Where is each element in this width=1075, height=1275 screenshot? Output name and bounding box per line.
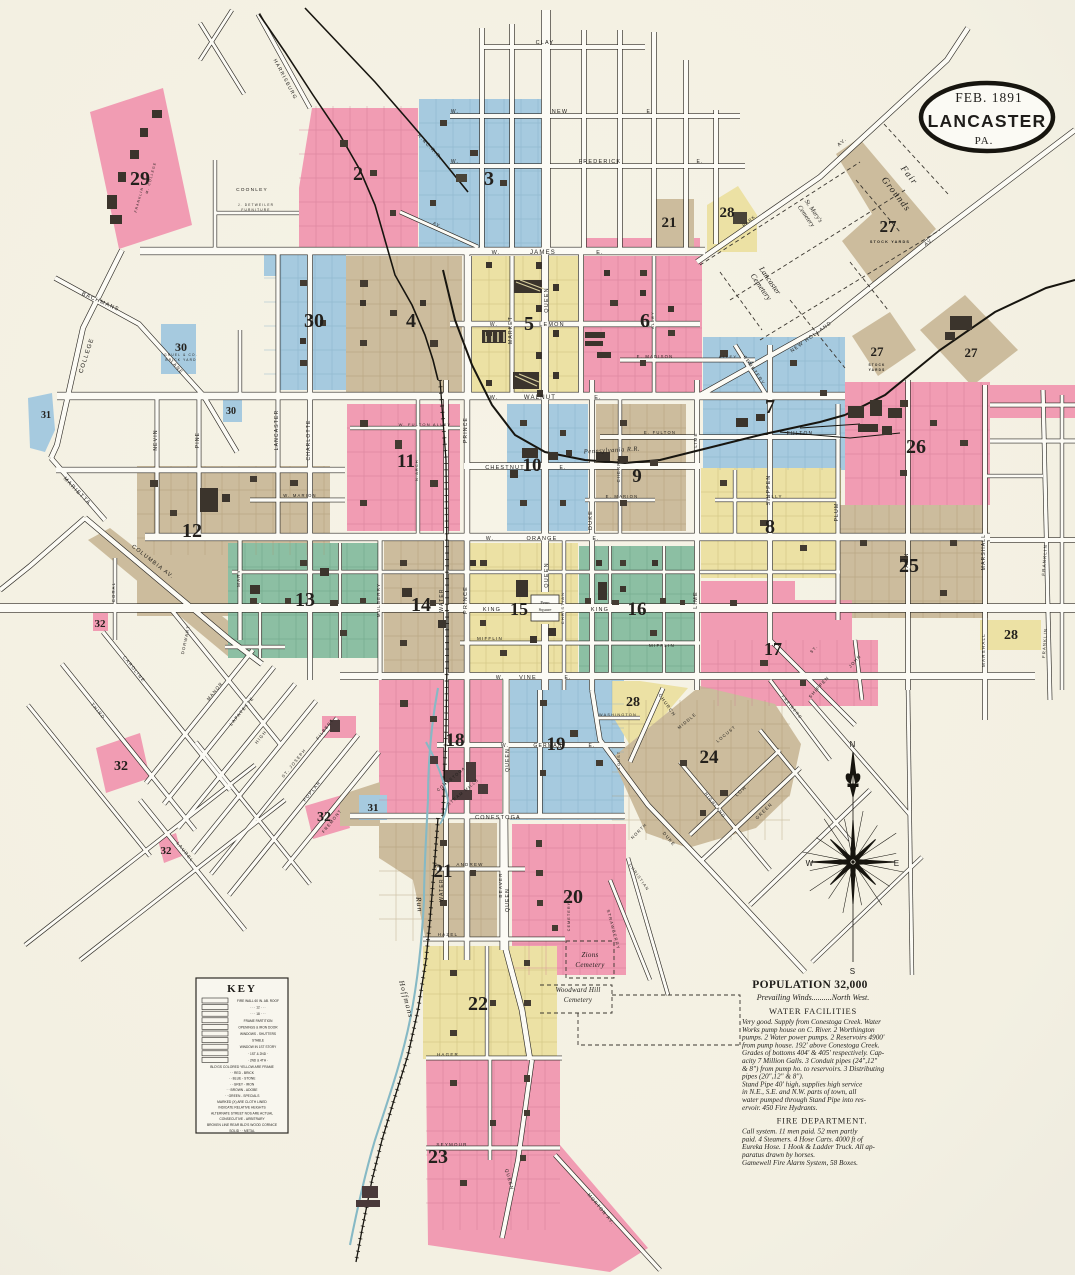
svg-text:13: 13 bbox=[295, 589, 315, 611]
svg-text:DUKE: DUKE bbox=[588, 510, 594, 530]
svg-text:KING: KING bbox=[591, 607, 609, 613]
svg-text:30: 30 bbox=[226, 406, 236, 417]
svg-text:16: 16 bbox=[628, 599, 647, 620]
svg-text:2: 2 bbox=[353, 163, 363, 185]
svg-text:NEVIN: NEVIN bbox=[153, 429, 159, 450]
svg-text:· · · 18 · · ·: · · · 18 · · · bbox=[250, 1012, 265, 1016]
svg-text:8: 8 bbox=[765, 516, 775, 538]
svg-text:OPENINGS & IRON DOOR: OPENINGS & IRON DOOR bbox=[238, 1025, 278, 1029]
svg-text:LIME: LIME bbox=[693, 591, 699, 609]
svg-text:QUEEN: QUEEN bbox=[544, 562, 550, 588]
svg-text:W.: W. bbox=[451, 109, 459, 115]
svg-text:COONLEY: COONLEY bbox=[236, 187, 268, 193]
svg-text:MARSHALL: MARSHALL bbox=[981, 534, 987, 571]
svg-text:PRINCE: PRINCE bbox=[463, 586, 469, 614]
svg-text:FURNITURE: FURNITURE bbox=[241, 208, 270, 212]
svg-text:QUEEN: QUEEN bbox=[505, 888, 511, 912]
svg-text:3: 3 bbox=[484, 168, 494, 190]
svg-text:· 2ND & 4TH ·: · 2ND & 4TH · bbox=[248, 1058, 268, 1062]
svg-text:28: 28 bbox=[720, 205, 735, 221]
svg-text:32: 32 bbox=[317, 810, 331, 825]
svg-text:SOLID · · METAL: SOLID · · METAL bbox=[229, 1129, 255, 1133]
svg-text:MARKED (X) ARE CLOTH LINED: MARKED (X) ARE CLOTH LINED bbox=[217, 1100, 267, 1104]
svg-text:ORANGE: ORANGE bbox=[526, 536, 557, 542]
svg-text:WINDOW IN 1ST STORY: WINDOW IN 1ST STORY bbox=[240, 1045, 277, 1049]
svg-text:W.: W. bbox=[490, 322, 498, 328]
svg-text:E.: E. bbox=[696, 159, 703, 165]
svg-text:ANDREW: ANDREW bbox=[456, 862, 483, 867]
svg-text:31: 31 bbox=[41, 410, 51, 421]
svg-text:STABLE: STABLE bbox=[252, 1039, 264, 1043]
svg-text:30: 30 bbox=[175, 340, 187, 354]
svg-text:4: 4 bbox=[406, 310, 416, 332]
svg-text:18: 18 bbox=[446, 730, 465, 751]
svg-text:W.: W. bbox=[490, 395, 499, 401]
svg-text:ALLEY: ALLEY bbox=[651, 311, 655, 329]
svg-text:PA.: PA. bbox=[975, 135, 994, 147]
svg-text:Cemetery: Cemetery bbox=[575, 961, 605, 969]
svg-text:9: 9 bbox=[632, 466, 642, 487]
svg-text:LEMON: LEMON bbox=[539, 322, 565, 328]
svg-text:CHARLOTTE: CHARLOTTE bbox=[306, 419, 312, 460]
svg-text:BRICK YARD: BRICK YARD bbox=[165, 358, 196, 362]
svg-text:FREDERICK: FREDERICK bbox=[579, 159, 622, 165]
svg-text:VINE: VINE bbox=[519, 675, 537, 681]
svg-text:LANCASTER: LANCASTER bbox=[928, 111, 1047, 131]
svg-text:MARSHALL: MARSHALL bbox=[981, 633, 986, 667]
svg-text:E. FULTON: E. FULTON bbox=[644, 430, 676, 435]
svg-text:10: 10 bbox=[523, 455, 542, 476]
svg-text:SHIPPEN: SHIPPEN bbox=[766, 475, 772, 505]
svg-text:· · RED -: · · RED - BRICK bbox=[230, 1071, 255, 1075]
svg-text:· 1ST & 2ND ·: · 1ST & 2ND · bbox=[248, 1052, 268, 1056]
svg-text:MULBERRY: MULBERRY bbox=[376, 583, 381, 618]
svg-text:E: E bbox=[894, 859, 901, 868]
svg-text:W: W bbox=[806, 859, 815, 868]
svg-text:E.: E. bbox=[588, 743, 595, 749]
svg-text:E.: E. bbox=[592, 536, 599, 542]
svg-text:27: 27 bbox=[871, 344, 885, 359]
svg-text:Gamewell Fire Alarm System, 58: Gamewell Fire Alarm System, 58 Boxes. bbox=[742, 1159, 858, 1167]
svg-text:PLUM: PLUM bbox=[834, 503, 840, 522]
svg-text:CHESTNUT: CHESTNUT bbox=[485, 465, 525, 471]
svg-text:CHERRY: CHERRY bbox=[616, 458, 621, 483]
svg-text:E.: E. bbox=[646, 109, 653, 115]
svg-text:· · · 12 · · ·: · · · 12 · · · bbox=[250, 1006, 265, 1010]
svg-text:pumps. 2 Water power pumps. 2: pumps. 2 Water power pumps. 2 Reservoirs… bbox=[741, 1034, 885, 1042]
svg-text:26: 26 bbox=[906, 436, 926, 458]
svg-text:pipes (20",12" & 8").: pipes (20",12" & 8"). bbox=[741, 1073, 804, 1081]
svg-text:32: 32 bbox=[114, 759, 128, 774]
svg-text:from pump house. 192' above Co: from pump house. 192' above Conestoga Cr… bbox=[742, 1041, 880, 1049]
svg-text:24: 24 bbox=[700, 747, 720, 768]
svg-text:WATER: WATER bbox=[439, 588, 445, 612]
svg-text:WATER FACILITIES: WATER FACILITIES bbox=[769, 1006, 857, 1016]
svg-text:19: 19 bbox=[547, 734, 566, 755]
svg-text:· · BLUE -: · · BLUE - STONE bbox=[229, 1077, 257, 1081]
svg-text:20: 20 bbox=[563, 886, 583, 908]
svg-text:23: 23 bbox=[428, 1146, 448, 1168]
svg-text:CONSECUTIVE - ARBITRARY: CONSECUTIVE - ARBITRARY bbox=[219, 1117, 265, 1121]
svg-text:FIRE WALL 60 IN. AB. ROOF: FIRE WALL 60 IN. AB. ROOF bbox=[237, 999, 279, 1003]
svg-text:MIFFLIN: MIFFLIN bbox=[649, 643, 675, 648]
svg-text:HAZEL: HAZEL bbox=[438, 932, 459, 937]
svg-text:QUEEN: QUEEN bbox=[505, 748, 511, 772]
svg-text:INDICATE RELATIVE HEIGHTS: INDICATE RELATIVE HEIGHTS bbox=[218, 1106, 266, 1110]
svg-text:LANCASTER: LANCASTER bbox=[274, 410, 280, 451]
svg-text:BEAVER: BEAVER bbox=[498, 872, 503, 897]
svg-text:FEB. 1891: FEB. 1891 bbox=[955, 90, 1023, 105]
svg-text:21: 21 bbox=[662, 215, 677, 231]
svg-text:22: 22 bbox=[468, 993, 488, 1015]
svg-text:27: 27 bbox=[880, 217, 898, 236]
svg-text:W.: W. bbox=[496, 675, 504, 681]
svg-text:E.: E. bbox=[596, 250, 604, 256]
svg-text:FRAME PARTITION: FRAME PARTITION bbox=[244, 1019, 273, 1023]
svg-text:30: 30 bbox=[304, 310, 324, 332]
svg-text:Call system. 11 men paid. 52 m: Call system. 11 men paid. 52 men partly bbox=[742, 1128, 858, 1136]
svg-text:NEW: NEW bbox=[552, 109, 568, 115]
svg-text:32: 32 bbox=[95, 618, 107, 630]
svg-text:17: 17 bbox=[764, 639, 782, 659]
svg-text:FIRE DEPARTMENT.: FIRE DEPARTMENT. bbox=[777, 1116, 868, 1126]
svg-text:ALTERNATE STREET NOS ARE ACTUA: ALTERNATE STREET NOS ARE ACTUAL bbox=[211, 1111, 273, 1115]
svg-text:KING: KING bbox=[483, 607, 501, 613]
svg-text:Grades of bottoms 404' & 405': Grades of bottoms 404' & 405' respective… bbox=[742, 1049, 885, 1057]
svg-text:N.ARCH: N.ARCH bbox=[415, 459, 419, 481]
svg-text:25: 25 bbox=[899, 555, 919, 577]
svg-text:E.: E. bbox=[559, 465, 566, 471]
svg-text:W.: W. bbox=[451, 159, 459, 165]
svg-text:CLAY: CLAY bbox=[536, 40, 555, 46]
svg-text:KEY: KEY bbox=[227, 983, 257, 995]
svg-text:W. FULTON ALLEY: W. FULTON ALLEY bbox=[399, 422, 452, 427]
svg-text:J. DETWEILER: J. DETWEILER bbox=[238, 203, 274, 207]
svg-text:paratus drawn by horses.: paratus drawn by horses. bbox=[741, 1151, 815, 1159]
svg-text:BLD'GS COLORED YELLOW ARE FRAM: BLD'GS COLORED YELLOW ARE FRAME bbox=[210, 1065, 274, 1069]
svg-text:W.: W. bbox=[501, 743, 509, 749]
svg-text:21: 21 bbox=[434, 861, 453, 882]
svg-text:· · BROWN - AD: · · BROWN - ADOBE bbox=[227, 1088, 259, 1092]
svg-text:MIFFLIN: MIFFLIN bbox=[477, 636, 503, 641]
svg-text:E.: E. bbox=[564, 675, 571, 681]
svg-text:LOUST: LOUST bbox=[617, 751, 621, 770]
svg-text:E. MADISON: E. MADISON bbox=[637, 354, 674, 359]
svg-text:POPULATION 32,000: POPULATION 32,000 bbox=[752, 979, 867, 991]
svg-text:Penn: Penn bbox=[540, 600, 550, 605]
svg-text:W.: W. bbox=[486, 536, 494, 542]
svg-text:LIME: LIME bbox=[693, 432, 698, 447]
svg-text:W. MARION: W. MARION bbox=[283, 493, 317, 498]
svg-text:paid. 4 Steamers. 4 Hose Carts: paid. 4 Steamers. 4 Hose Carts. 4000 ft … bbox=[741, 1135, 864, 1143]
svg-text:28: 28 bbox=[626, 695, 640, 710]
svg-text:11: 11 bbox=[397, 451, 415, 472]
svg-text:QUEEN: QUEEN bbox=[544, 287, 550, 313]
svg-text:Prevailing Winds..........Nort: Prevailing Winds..........North West. bbox=[756, 993, 870, 1002]
svg-text:Very good. Supply from Conesto: Very good. Supply from Conestoga Creek. … bbox=[742, 1018, 881, 1026]
svg-text:CHRISTIAN: CHRISTIAN bbox=[560, 592, 565, 624]
svg-text:STOCK YARDS: STOCK YARDS bbox=[870, 240, 910, 244]
svg-text:acity 7 Million Galls. 3 Condu: acity 7 Million Galls. 3 Conduit pipes (… bbox=[742, 1057, 878, 1065]
svg-text:· · GREY -: · · GREY - IRON bbox=[230, 1082, 255, 1086]
svg-text:Cemetery: Cemetery bbox=[564, 996, 593, 1004]
svg-text:· · GREEN - SPEC: · · GREEN - SPECIALS bbox=[225, 1094, 261, 1098]
svg-text:29: 29 bbox=[130, 168, 150, 190]
svg-text:JAMES: JAMES bbox=[530, 250, 556, 256]
svg-text:& 8") from pump ho. to reservo: & 8") from pump ho. to reservoirs. 3 Dis… bbox=[742, 1065, 885, 1073]
svg-text:water pumped through Stand Pip: water pumped through Stand Pipe into res… bbox=[742, 1096, 867, 1104]
svg-text:FULTON: FULTON bbox=[787, 431, 814, 437]
svg-text:Zions: Zions bbox=[581, 951, 598, 959]
svg-text:31: 31 bbox=[368, 802, 379, 814]
svg-text:E. MARION: E. MARION bbox=[606, 494, 639, 499]
svg-text:15: 15 bbox=[510, 599, 528, 619]
svg-text:W.: W. bbox=[492, 250, 501, 256]
svg-text:Square: Square bbox=[539, 607, 552, 612]
svg-text:ervoir. 450 Fire Hydrants.: ervoir. 450 Fire Hydrants. bbox=[742, 1104, 818, 1112]
svg-text:S: S bbox=[850, 967, 857, 976]
svg-text:ALLEY: ALLEY bbox=[719, 354, 737, 359]
svg-text:14: 14 bbox=[411, 594, 431, 616]
svg-text:WALNUT: WALNUT bbox=[524, 395, 556, 401]
svg-text:YARDS: YARDS bbox=[869, 368, 886, 372]
svg-text:MARY: MARY bbox=[236, 569, 241, 587]
svg-text:6: 6 bbox=[640, 310, 650, 332]
svg-text:28: 28 bbox=[1004, 628, 1018, 643]
svg-text:STOCK: STOCK bbox=[868, 363, 885, 367]
svg-text:CONESTOGA: CONESTOGA bbox=[475, 815, 521, 821]
svg-text:5: 5 bbox=[524, 313, 534, 335]
svg-text:CORAL: CORAL bbox=[111, 582, 116, 602]
svg-text:HAGER: HAGER bbox=[437, 1052, 459, 1057]
svg-text:WINDOWS - SHUTTERS: WINDOWS - SHUTTERS bbox=[240, 1032, 276, 1036]
svg-text:7: 7 bbox=[765, 396, 775, 418]
svg-text:MARKET: MARKET bbox=[508, 316, 514, 344]
svg-text:Works pump house on C. River.: Works pump house on C. River. 2 Worthing… bbox=[742, 1026, 875, 1034]
svg-text:Woodward Hill: Woodward Hill bbox=[555, 986, 600, 994]
svg-text:12: 12 bbox=[182, 520, 202, 542]
svg-text:WASHINGTON: WASHINGTON bbox=[599, 713, 637, 717]
svg-text:PRINCE: PRINCE bbox=[463, 417, 469, 443]
svg-text:E.: E. bbox=[594, 395, 602, 401]
svg-text:N: N bbox=[850, 740, 857, 749]
svg-text:Stand Pipe 40' high, supplies: Stand Pipe 40' high, supplies high servi… bbox=[742, 1080, 863, 1088]
svg-text:in N.E., S.E. and N.W. parts o: in N.E., S.E. and N.W. parts of town, al… bbox=[742, 1088, 856, 1096]
svg-text:PINE: PINE bbox=[195, 432, 201, 448]
svg-text:27: 27 bbox=[965, 345, 979, 360]
svg-text:BROKEN LINE REAR BLD'S WOOD CO: BROKEN LINE REAR BLD'S WOOD CORNICE bbox=[207, 1123, 278, 1127]
svg-text:32: 32 bbox=[161, 845, 173, 857]
svg-text:Eureka Hose. 1 Hook & Ladder T: Eureka Hose. 1 Hook & Ladder Truck. All … bbox=[741, 1143, 876, 1151]
